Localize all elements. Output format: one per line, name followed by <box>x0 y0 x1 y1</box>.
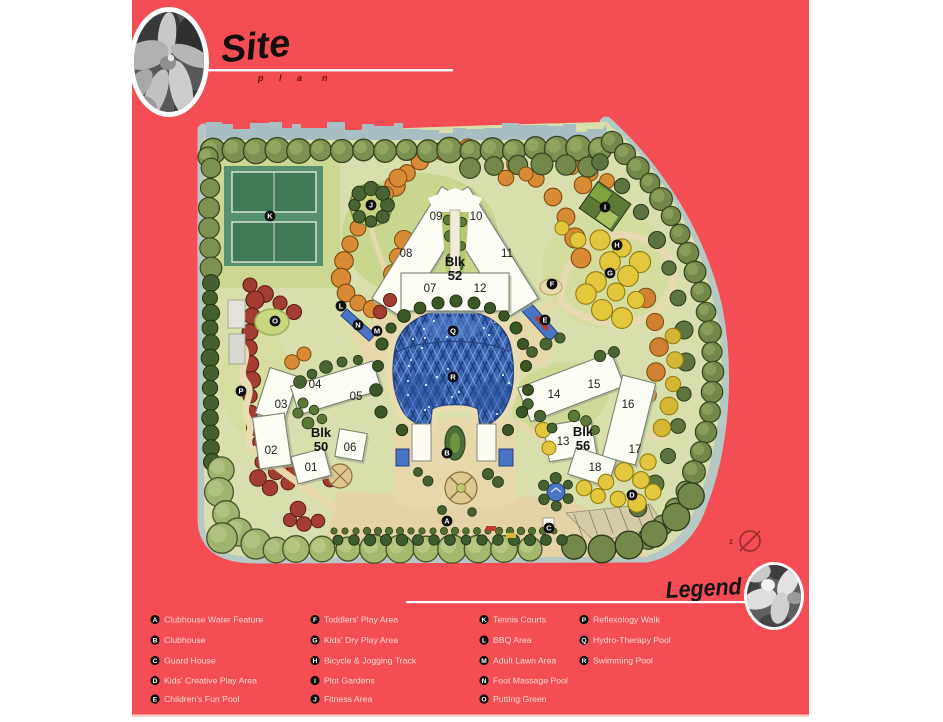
svg-text:M: M <box>481 658 487 665</box>
svg-text:E: E <box>542 316 547 325</box>
svg-text:Plot Gardens: Plot Gardens <box>324 676 375 686</box>
svg-text:Bicycle & Jogging Track: Bicycle & Jogging Track <box>324 656 417 666</box>
svg-text:D: D <box>629 491 635 500</box>
svg-text:Blk: Blk <box>573 424 594 439</box>
svg-text:07: 07 <box>424 283 437 295</box>
svg-text:G: G <box>312 637 317 644</box>
svg-text:18: 18 <box>589 462 602 474</box>
svg-text:52: 52 <box>448 268 462 283</box>
svg-text:K: K <box>267 212 273 221</box>
svg-text:11: 11 <box>501 248 513 260</box>
svg-text:J: J <box>369 201 373 210</box>
svg-text:14: 14 <box>548 389 561 401</box>
svg-text:Kids' Creative Play Area: Kids' Creative Play Area <box>164 676 257 686</box>
svg-text:01: 01 <box>305 462 318 474</box>
svg-text:04: 04 <box>309 379 322 391</box>
svg-text:03: 03 <box>275 399 288 411</box>
svg-text:Kids' Dry Play Area: Kids' Dry Play Area <box>324 635 398 645</box>
svg-text:Site: Site <box>219 22 293 71</box>
svg-text:A: A <box>153 617 158 624</box>
svg-text:Legend: Legend <box>665 573 743 603</box>
svg-text:Fitness Area: Fitness Area <box>324 694 372 704</box>
svg-text:Putting Green: Putting Green <box>493 694 547 704</box>
svg-text:Adult Lawn Area: Adult Lawn Area <box>493 656 556 666</box>
svg-text:15: 15 <box>588 379 601 391</box>
svg-text:Hydro-Therapy Pool: Hydro-Therapy Pool <box>593 635 671 645</box>
svg-text:p: p <box>257 73 264 83</box>
svg-text:z: z <box>729 537 733 546</box>
svg-text:M: M <box>374 327 380 336</box>
svg-text:Q: Q <box>450 327 456 336</box>
svg-text:C: C <box>546 524 552 533</box>
svg-text:A: A <box>444 517 450 526</box>
svg-text:H: H <box>614 241 619 250</box>
svg-text:N: N <box>355 321 360 330</box>
svg-text:BBQ Area: BBQ Area <box>493 635 532 645</box>
svg-text:n: n <box>322 73 328 83</box>
svg-text:02: 02 <box>265 445 278 457</box>
svg-text:Guard House: Guard House <box>164 656 216 666</box>
svg-text:16: 16 <box>622 399 635 411</box>
svg-text:Reflexology Walk: Reflexology Walk <box>593 615 660 625</box>
svg-text:Foot Massage Pool: Foot Massage Pool <box>493 676 568 686</box>
svg-text:56: 56 <box>576 438 590 453</box>
svg-text:Clubhouse Water Feature: Clubhouse Water Feature <box>164 615 263 625</box>
svg-text:F: F <box>550 280 555 289</box>
svg-text:05: 05 <box>350 391 363 403</box>
svg-text:Blk: Blk <box>311 425 332 440</box>
svg-text:G: G <box>607 269 613 278</box>
svg-text:N: N <box>482 678 487 685</box>
svg-text:R: R <box>582 658 587 665</box>
svg-text:L: L <box>482 637 486 644</box>
svg-text:P: P <box>582 617 587 624</box>
svg-text:a: a <box>297 73 302 83</box>
svg-text:Children's Fun Pool: Children's Fun Pool <box>164 694 240 704</box>
svg-text:C: C <box>153 658 158 665</box>
svg-text:Blk: Blk <box>445 254 466 269</box>
svg-text:Toddlers' Play Area: Toddlers' Play Area <box>324 615 398 625</box>
svg-text:O: O <box>272 317 278 326</box>
svg-text:09: 09 <box>430 211 443 223</box>
svg-text:13: 13 <box>557 436 570 448</box>
svg-text:Q: Q <box>581 637 586 644</box>
svg-text:J: J <box>313 696 317 703</box>
svg-text:17: 17 <box>629 444 642 456</box>
svg-text:H: H <box>313 658 318 665</box>
svg-text:06: 06 <box>344 442 357 454</box>
svg-text:Tennis Courts: Tennis Courts <box>493 615 547 625</box>
svg-text:K: K <box>482 617 487 624</box>
svg-text:B: B <box>153 637 158 644</box>
svg-text:50: 50 <box>314 439 328 454</box>
svg-text:12: 12 <box>474 283 487 295</box>
svg-text:08: 08 <box>400 248 413 260</box>
svg-text:F: F <box>313 617 317 624</box>
svg-text:P: P <box>238 387 243 396</box>
svg-text:R: R <box>450 373 456 382</box>
svg-text:I: I <box>604 203 606 212</box>
svg-text:O: O <box>481 696 486 703</box>
svg-text:Clubhouse: Clubhouse <box>164 635 206 645</box>
svg-text:L: L <box>339 302 344 311</box>
svg-text:B: B <box>444 449 450 458</box>
svg-text:Swimming Pool: Swimming Pool <box>593 656 653 666</box>
svg-text:10: 10 <box>470 211 483 223</box>
svg-text:D: D <box>153 678 158 685</box>
svg-text:I: I <box>314 678 316 685</box>
svg-text:E: E <box>153 696 158 703</box>
